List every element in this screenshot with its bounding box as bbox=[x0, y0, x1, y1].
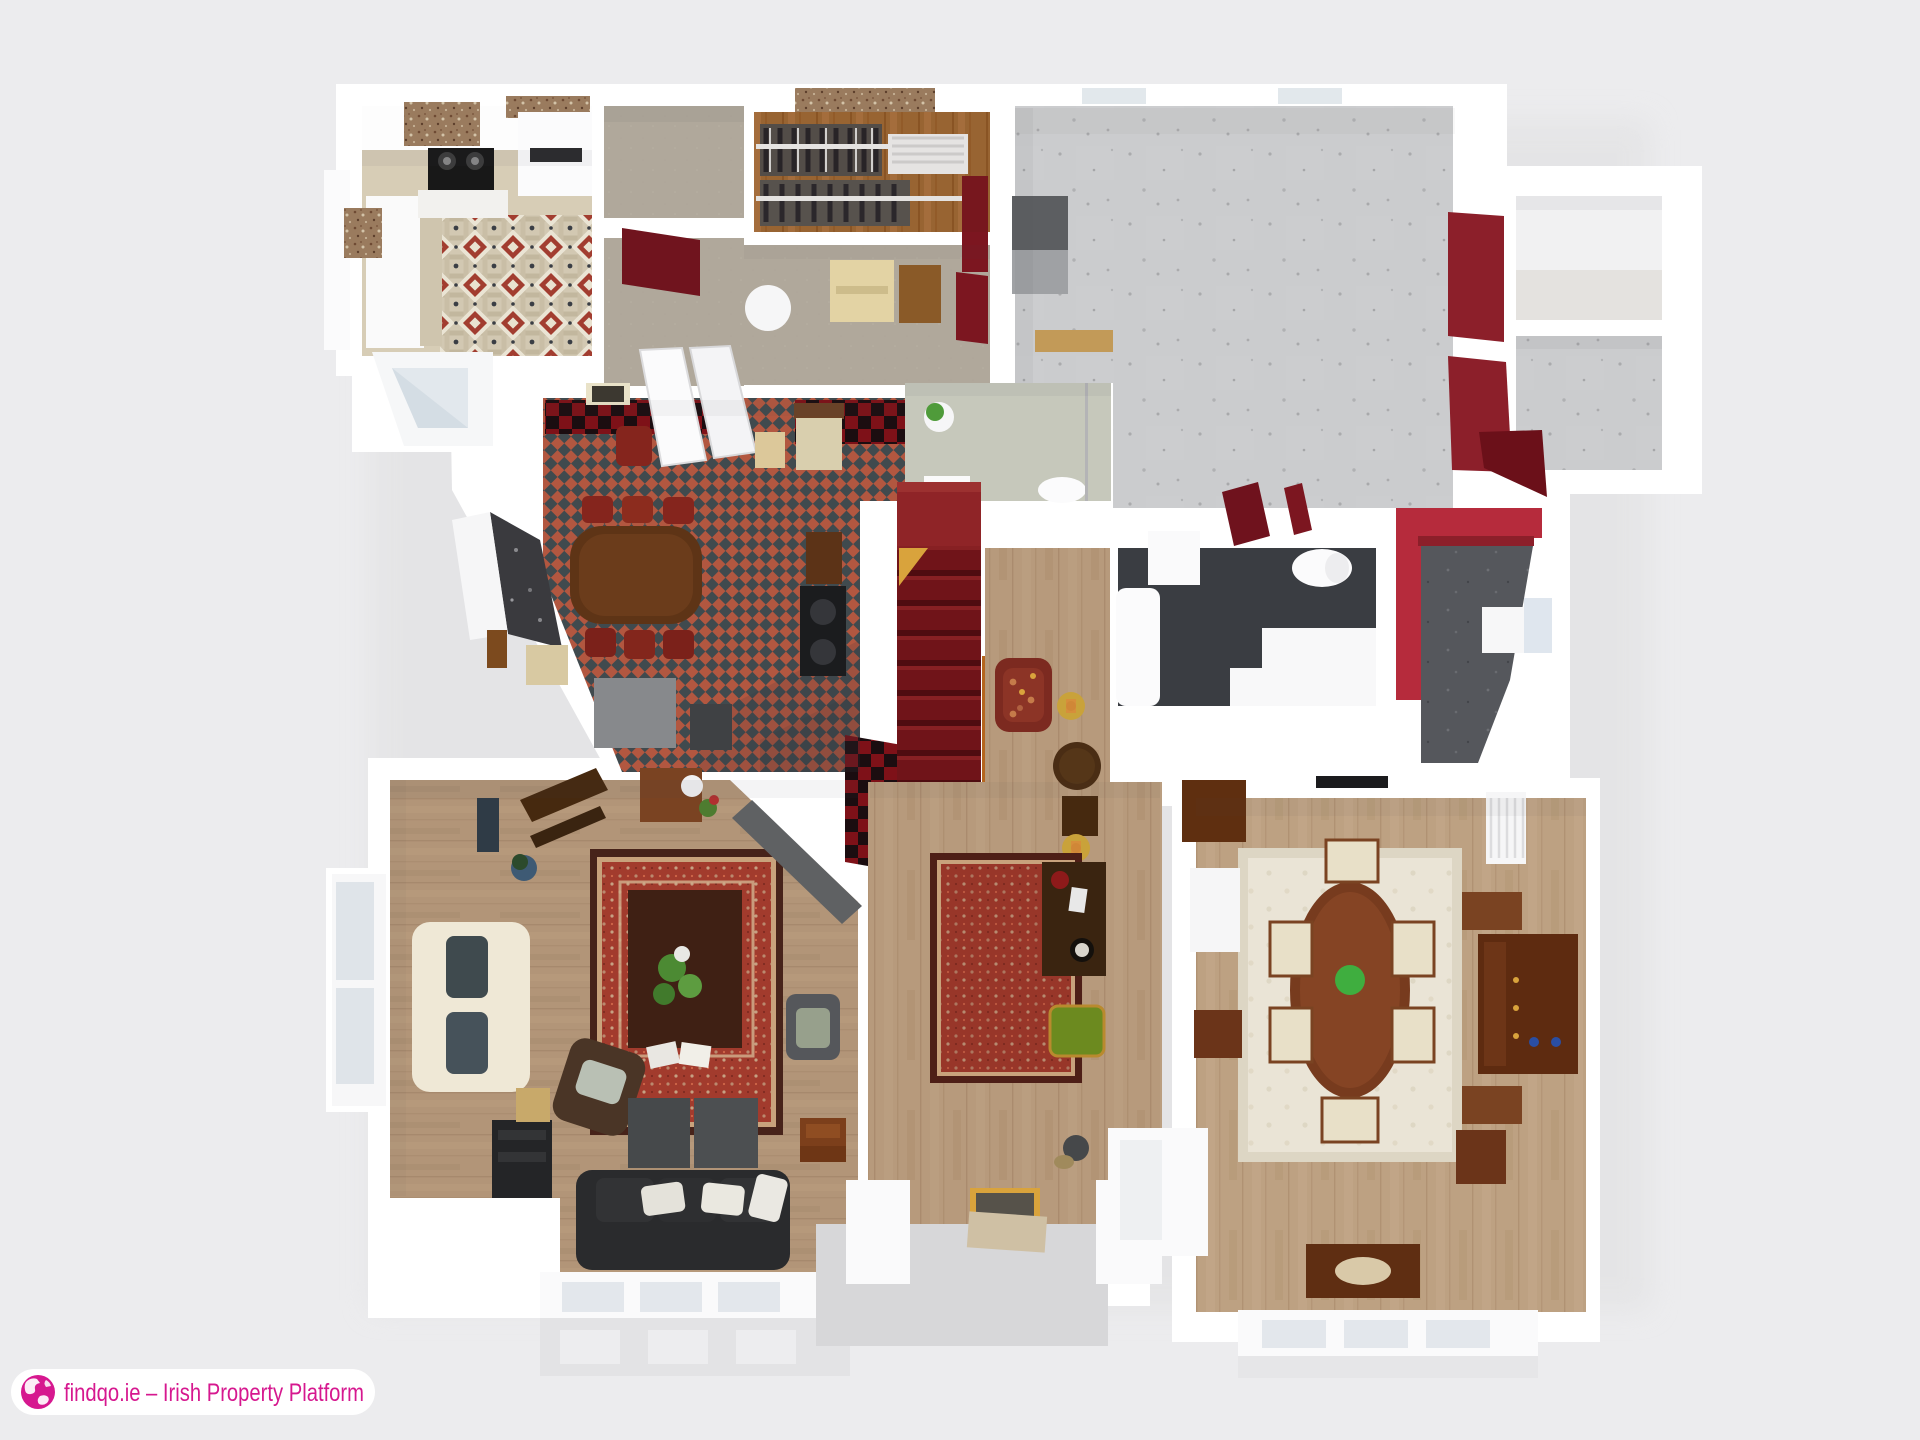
svg-text:findqo.ie – Irish Property Pla: findqo.ie – Irish Property Platform bbox=[64, 1379, 364, 1407]
